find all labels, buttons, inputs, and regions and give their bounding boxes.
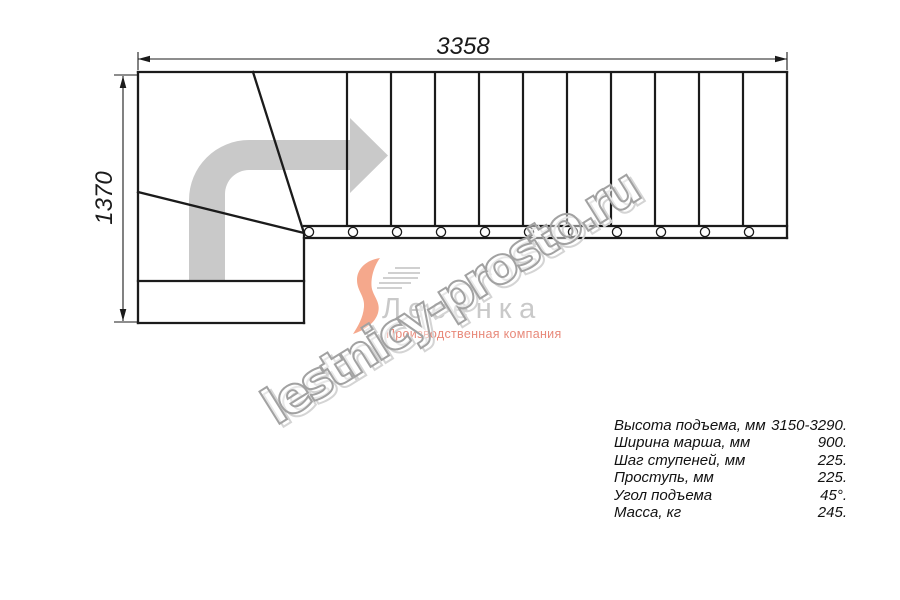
dim-arrow-left	[138, 56, 150, 63]
dim-arrow-right	[775, 56, 787, 63]
spec-label: Ширина марша, мм	[614, 434, 750, 451]
spec-label: Проступь, мм	[614, 469, 714, 486]
spec-value: 225.	[818, 452, 847, 469]
tread-lines	[347, 72, 743, 226]
spec-label: Угол подъема	[614, 487, 712, 504]
company-logo: Лесенка Производственная компания	[350, 255, 580, 345]
spec-label: Шаг ступеней, мм	[614, 452, 745, 469]
bolt-hole	[568, 227, 577, 236]
spec-label: Масса, кг	[614, 504, 681, 521]
dimension-width-label: 3358	[436, 33, 490, 60]
dimension-width: 3358	[138, 33, 787, 70]
bolt-hole	[524, 227, 533, 236]
bolt-hole	[436, 227, 445, 236]
bolt-hole	[656, 227, 665, 236]
spec-label: Высота подъема, мм	[614, 417, 766, 434]
bolt-hole	[612, 227, 621, 236]
spec-value: 900.	[818, 434, 847, 451]
logo-name: Лесенка	[382, 293, 542, 326]
specs-table: Высота подъема, мм 3150-3290. Ширина мар…	[614, 417, 847, 521]
bolt-hole	[700, 227, 709, 236]
spec-value: 45°.	[820, 487, 847, 504]
dimension-height-label: 1370	[91, 171, 118, 225]
stair-drawing-page: 3358 1370 Лесенка Произв	[0, 0, 900, 600]
logo-tagline: Производственная компания	[386, 327, 562, 341]
spec-row: Проступь, мм 225.	[614, 469, 847, 486]
dimension-height: 1370	[91, 75, 137, 322]
dim-arrow-top	[120, 76, 127, 88]
bolt-hole	[392, 227, 401, 236]
spec-row: Шаг ступеней, мм 225.	[614, 452, 847, 469]
bolt-hole	[480, 227, 489, 236]
spec-value: 245.	[818, 504, 847, 521]
dim-arrow-bottom	[120, 309, 127, 321]
spec-row: Высота подъема, мм 3150-3290.	[614, 417, 847, 434]
spec-value: 3150-3290.	[771, 417, 847, 434]
spec-row: Угол подъема 45°.	[614, 487, 847, 504]
bolt-hole	[304, 227, 313, 236]
bolt-hole	[744, 227, 753, 236]
spec-row: Ширина марша, мм 900.	[614, 434, 847, 451]
spec-value: 225.	[818, 469, 847, 486]
bolt-hole	[348, 227, 357, 236]
spec-row: Масса, кг 245.	[614, 504, 847, 521]
bolt-holes	[304, 227, 753, 236]
